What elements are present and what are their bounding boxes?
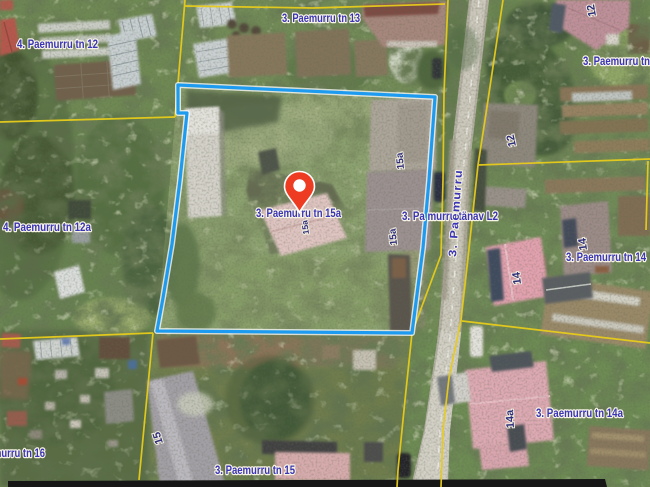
svg-text:15a: 15a [299,219,311,235]
svg-text:3. Paemurru tn 13: 3. Paemurru tn 13 [282,11,360,25]
svg-text:4. Paemurru tn 12: 4. Paemurru tn 12 [17,37,98,51]
svg-text:12: 12 [585,3,599,17]
svg-text:14: 14 [576,237,590,251]
svg-text:14: 14 [510,271,524,285]
svg-text:3. Paemurru tn 14: 3. Paemurru tn 14 [566,250,646,264]
svg-text:3. Paemurru tn: 3. Paemurru tn [583,54,650,68]
svg-text:4. Paemurru tn 12a: 4. Paemurru tn 12a [3,220,91,234]
svg-text:12: 12 [505,133,519,147]
svg-text:3. Paemurru tn 15: 3. Paemurru tn 15 [215,463,295,477]
svg-text:15a: 15a [395,152,407,170]
svg-text:3. Paemurru tn 14a: 3. Paemurru tn 14a [536,406,623,420]
svg-text:15a: 15a [388,228,400,246]
svg-text:murru tn 16: murru tn 16 [0,446,45,460]
svg-text:14a: 14a [504,409,517,429]
